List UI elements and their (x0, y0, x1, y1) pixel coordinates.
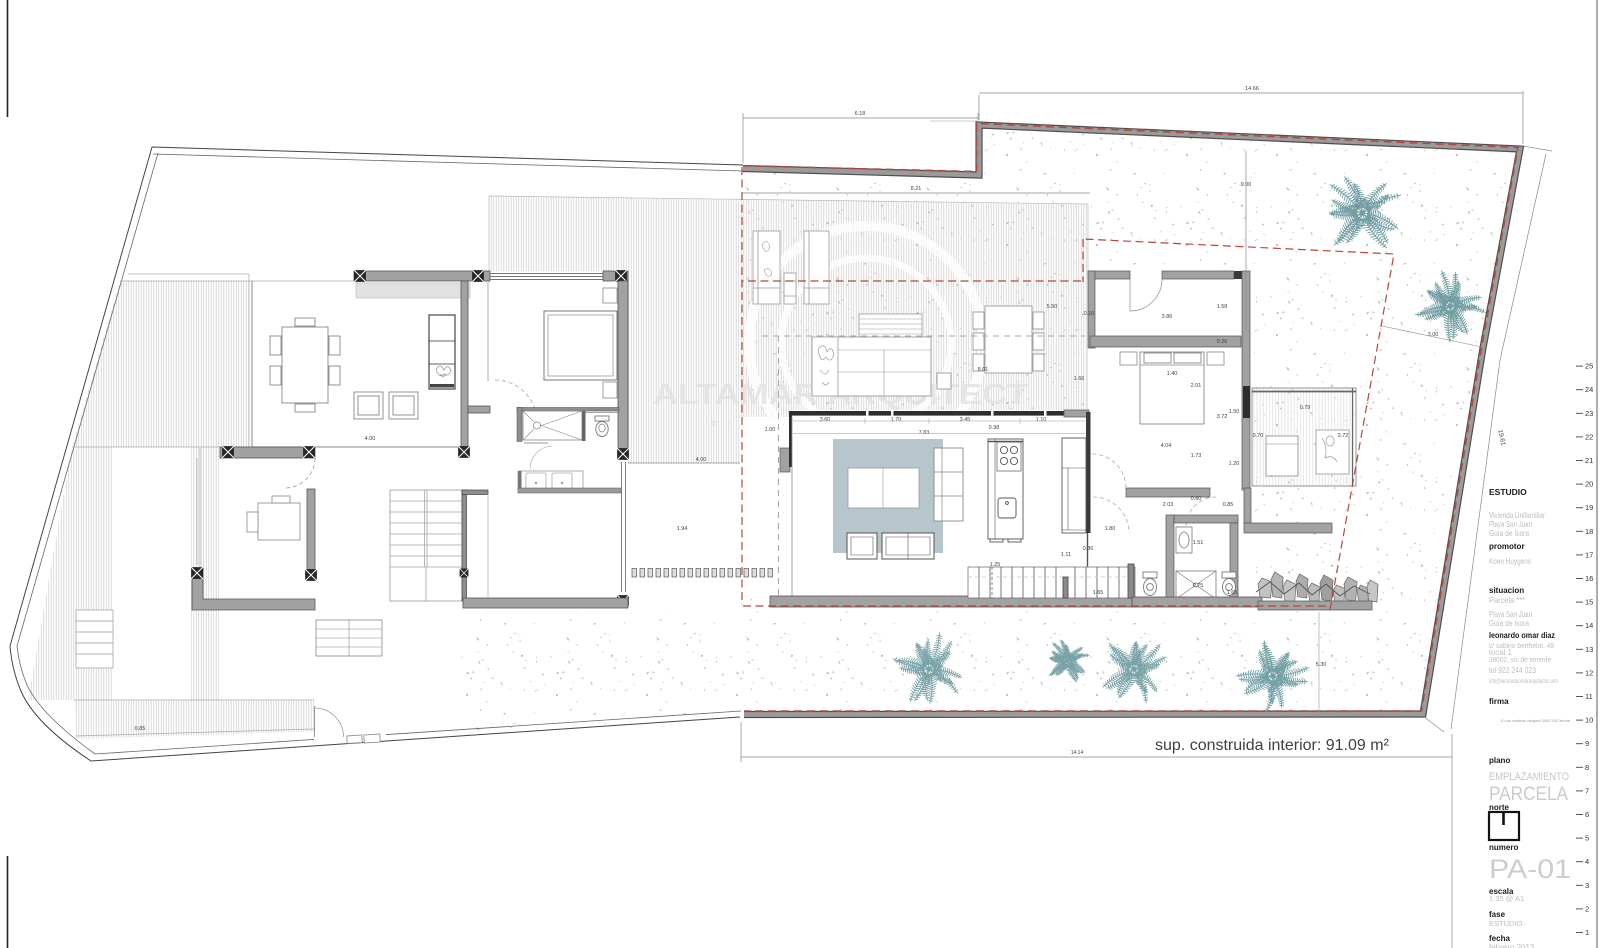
svg-text:12: 12 (1585, 668, 1593, 677)
svg-text:1: 1 (1585, 928, 1589, 937)
svg-text:1.11: 1.11 (1061, 552, 1071, 558)
svg-text:0.86: 0.86 (1083, 546, 1094, 552)
svg-text:0.79: 0.79 (1300, 405, 1311, 411)
svg-text:4.04: 4.04 (1161, 443, 1172, 449)
svg-text:0.26: 0.26 (1217, 339, 1228, 345)
svg-text:1.40: 1.40 (1167, 371, 1178, 377)
svg-text:3.72: 3.72 (1217, 414, 1228, 420)
svg-text:18: 18 (1585, 527, 1593, 536)
svg-text:14: 14 (1585, 621, 1593, 630)
svg-text:fase: fase (1489, 910, 1506, 919)
svg-text:firma: firma (1489, 697, 1509, 706)
svg-text:0.85: 0.85 (1223, 502, 1234, 508)
svg-text:leonardo omar diaz: leonardo omar diaz (1489, 630, 1555, 640)
svg-text:ESTUDIO: ESTUDIO (1489, 919, 1523, 928)
svg-text:1.94: 1.94 (677, 526, 688, 532)
svg-text:3.86: 3.86 (1162, 314, 1173, 320)
svg-text:0.70: 0.70 (1253, 433, 1264, 439)
svg-text:20: 20 (1585, 480, 1593, 489)
svg-text:1:35 @ A1: 1:35 @ A1 (1489, 894, 1524, 903)
svg-text:1.73: 1.73 (1191, 453, 1202, 459)
svg-text:Guía de Isora: Guía de Isora (1489, 619, 1529, 628)
svg-text:Vivienda Unifamiliar: Vivienda Unifamiliar (1489, 511, 1545, 520)
svg-text:situacion: situacion (1489, 586, 1524, 595)
svg-text:2: 2 (1585, 904, 1589, 913)
svg-text:13: 13 (1585, 645, 1593, 654)
svg-text:6.18: 6.18 (855, 111, 866, 117)
svg-text:EMPLAZAMIENTO: EMPLAZAMIENTO (1489, 771, 1569, 783)
svg-text:0.75: 0.75 (1193, 583, 1204, 589)
svg-text:numero: numero (1489, 843, 1518, 852)
svg-text:7: 7 (1585, 786, 1589, 795)
svg-text:19: 19 (1585, 503, 1593, 512)
svg-text:4.00: 4.00 (696, 457, 707, 463)
svg-text:1.50: 1.50 (1229, 409, 1240, 415)
svg-text:info@leonardoomararquitecto.co: info@leonardoomararquitecto.com (1489, 678, 1558, 685)
svg-text:0.16: 0.16 (1084, 311, 1095, 317)
svg-text:6: 6 (1585, 810, 1589, 819)
svg-text:febrero 2013: febrero 2013 (1489, 943, 1535, 948)
svg-text:Guía de Isora: Guía de Isora (1489, 529, 1529, 538)
svg-text:38002, s/c de tenerife: 38002, s/c de tenerife (1489, 655, 1551, 664)
svg-text:plano: plano (1489, 756, 1510, 765)
svg-text:1.00: 1.00 (765, 427, 776, 433)
svg-text:D.Leon arquitecto colegiado 28: D.Leon arquitecto colegiado 2848 COAC te… (1501, 719, 1571, 723)
svg-text:23: 23 (1585, 409, 1593, 418)
svg-text:1.65: 1.65 (1227, 590, 1238, 596)
svg-text:25: 25 (1585, 362, 1593, 371)
svg-text:3.00: 3.00 (1428, 332, 1439, 338)
svg-text:1.66: 1.66 (1074, 376, 1085, 382)
svg-text:15: 15 (1585, 598, 1593, 607)
svg-text:4.00: 4.00 (365, 436, 376, 442)
svg-text:ESTUDIO: ESTUDIO (1489, 487, 1527, 497)
svg-text:11: 11 (1585, 692, 1593, 701)
svg-text:10: 10 (1585, 716, 1593, 725)
svg-text:3.60: 3.60 (820, 417, 831, 423)
svg-text:7.83: 7.83 (919, 430, 930, 436)
svg-text:promotor: promotor (1489, 542, 1525, 551)
svg-text:14.14: 14.14 (1071, 750, 1084, 756)
svg-text:1.25: 1.25 (990, 562, 1001, 568)
svg-text:1.20: 1.20 (1229, 461, 1240, 467)
svg-text:1.51: 1.51 (1193, 540, 1204, 546)
svg-text:5: 5 (1585, 834, 1589, 843)
svg-text:5.50: 5.50 (1047, 304, 1058, 310)
svg-text:2.01: 2.01 (1191, 383, 1202, 389)
svg-text:norte: norte (1489, 803, 1510, 812)
svg-text:14.66: 14.66 (1245, 86, 1259, 92)
svg-text:1.70: 1.70 (891, 417, 902, 423)
svg-text:Koen Huygens: Koen Huygens (1489, 557, 1531, 566)
svg-text:22: 22 (1585, 432, 1593, 441)
svg-text:9: 9 (1585, 739, 1589, 748)
svg-text:0.85: 0.85 (135, 726, 146, 732)
svg-text:3.45: 3.45 (960, 417, 971, 423)
svg-text:1.65: 1.65 (1093, 590, 1104, 596)
svg-text:8.21: 8.21 (911, 186, 922, 192)
svg-text:3.72: 3.72 (1338, 433, 1349, 439)
svg-text:3: 3 (1585, 881, 1589, 890)
svg-text:5.30: 5.30 (1316, 662, 1327, 668)
svg-text:PARCELA: PARCELA (1489, 783, 1568, 805)
svg-text:fecha: fecha (1489, 934, 1510, 943)
svg-text:16: 16 (1585, 574, 1593, 583)
svg-text:9.00: 9.00 (1241, 182, 1252, 188)
svg-text:Playa San Juan: Playa San Juan (1489, 610, 1532, 619)
svg-text:8: 8 (1585, 763, 1589, 772)
svg-text:Playa San Juan: Playa San Juan (1489, 520, 1532, 529)
svg-text:1.58: 1.58 (1217, 304, 1228, 310)
svg-text:4: 4 (1585, 857, 1589, 866)
svg-text:0.98: 0.98 (989, 425, 1000, 431)
svg-text:8.01: 8.01 (978, 367, 989, 373)
svg-text:PA-01: PA-01 (1489, 854, 1571, 884)
svg-text:21: 21 (1585, 456, 1593, 465)
svg-text:1.80: 1.80 (1105, 526, 1116, 532)
svg-text:17: 17 (1585, 550, 1593, 559)
svg-text:0.60: 0.60 (1191, 496, 1202, 502)
svg-text:2.03: 2.03 (1163, 502, 1174, 508)
svg-text:tel 922 244 023: tel 922 244 023 (1489, 666, 1536, 675)
svg-text:24: 24 (1585, 385, 1593, 394)
svg-text:sup. construida interior: 91.0: sup. construida interior: 91.09 m² (1155, 737, 1390, 754)
svg-text:1.10: 1.10 (1036, 417, 1047, 423)
svg-text:Parcela ***: Parcela *** (1489, 596, 1525, 605)
